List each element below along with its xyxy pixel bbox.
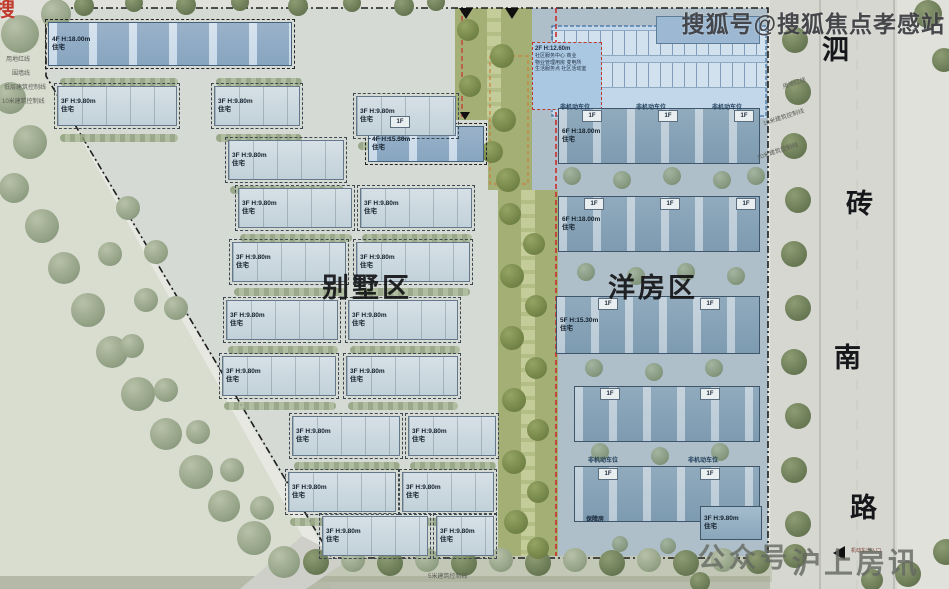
garage-1f-box: 1F	[600, 388, 620, 400]
building: 3F H:9.80m住宅	[402, 472, 494, 512]
building-label: 3F H:9.80m住宅	[352, 312, 387, 328]
building-label: 3F H:9.80m住宅	[364, 200, 399, 216]
watermark-sohu: 搜狐号@搜狐焦点孝感站	[682, 5, 945, 39]
building: 3F H:9.80m住宅	[238, 188, 352, 228]
garage-1f-box: 1F	[598, 468, 618, 480]
building-label: 4F H:15.30m住宅	[372, 136, 410, 152]
annotation-left: 低层建筑控制线	[4, 82, 46, 91]
zone-label-flats: 洋房区	[608, 266, 698, 305]
stall-label: 非机动车位	[636, 102, 666, 111]
building-label: 3F H:9.80m住宅	[704, 515, 739, 531]
building: 4F H:18.00m住宅	[48, 22, 292, 66]
building: 3F H:9.80m住宅	[360, 188, 472, 228]
building-label: 3F H:9.80m住宅	[412, 428, 447, 444]
building-label: 3F H:9.80m住宅	[236, 254, 271, 270]
building: 3F H:9.80m住宅	[292, 416, 400, 456]
road-name-char: 南	[834, 336, 861, 375]
building-label: 3F H:9.80m住宅	[61, 98, 96, 114]
entrance-marker-icon	[505, 8, 519, 19]
annotation-bottom: 5米建筑控制线	[428, 571, 467, 580]
buildings-layer: 4F H:18.00m住宅4F H:15.30m住宅3F H:9.80m住宅3F…	[0, 0, 949, 589]
building: 3F H:9.80m住宅	[408, 416, 496, 456]
garage-1f-box: 1F	[734, 110, 754, 122]
building-label: 3F H:9.80m住宅	[226, 368, 261, 384]
garage-1f-box: 1F	[658, 110, 678, 122]
building-label: 3F H:9.80m住宅	[326, 528, 361, 544]
garage-1f-box: 1F	[660, 198, 680, 210]
annotation-left: 用地红线	[6, 54, 30, 63]
building-label: 3F H:9.80m住宅	[296, 428, 331, 444]
building-label: 3F H:9.80m住宅	[232, 152, 267, 168]
garage-1f-box: 1F	[700, 388, 720, 400]
building: 3F H:9.80m住宅	[346, 356, 458, 396]
building-label: 3F H:9.80m住宅	[230, 312, 265, 328]
zone-label-villa: 别墅区	[322, 266, 412, 305]
entrance-marker-icon	[460, 112, 470, 120]
garage-1f-box: 1F	[700, 468, 720, 480]
building-label: 3F H:9.80m住宅	[218, 98, 253, 114]
watermark-hushangfangxun: 沪上房讯	[792, 540, 920, 582]
garage-1f-box: 1F	[736, 198, 756, 210]
building: 3F H:9.80m住宅	[700, 506, 762, 540]
annotation-affordable: 保障房	[586, 514, 604, 523]
building-label: 6F H:18.00m住宅	[562, 216, 600, 232]
stall-label: 非机动车位	[588, 455, 618, 464]
building-label: 5F H:15.30m住宅	[560, 317, 598, 333]
annotation-left: 10米建筑控制线	[2, 96, 45, 105]
building: 3F H:9.80m住宅	[57, 86, 177, 126]
building-label: 3F H:9.80m住宅	[350, 368, 385, 384]
building: 3F H:9.80m住宅	[288, 472, 396, 512]
building-label: 3F H:9.80m住宅	[440, 528, 475, 544]
stall-label: 非机动车位	[712, 102, 742, 111]
building: 3F H:9.80m住宅	[348, 300, 458, 340]
building: 3F H:9.80m住宅	[222, 356, 336, 396]
garage-1f-box: 1F	[700, 298, 720, 310]
site-plan: 2F H:12.60m 社区服务中心 商业 物业管理用房 变电所 生活服务点 社…	[0, 0, 949, 589]
building: 3F H:9.80m住宅	[228, 140, 344, 180]
road-name-char: 路	[850, 486, 877, 525]
watermark-gongzhonghao: 公众号	[698, 536, 791, 575]
stall-label: 非机动车位	[688, 455, 718, 464]
building: 3F H:9.80m住宅	[436, 516, 494, 556]
building: 3F H:9.80m住宅	[322, 516, 428, 556]
garage-1f-box: 1F	[582, 110, 602, 122]
building: 3F H:9.80m住宅	[226, 300, 338, 340]
road-name-char: 砖	[846, 182, 873, 221]
building-label: 4F H:18.00m住宅	[52, 36, 90, 52]
building-label: 3F H:9.80m住宅	[406, 484, 441, 500]
garage-1f-box: 1F	[390, 116, 410, 128]
building-label: 3F H:9.80m住宅	[242, 200, 277, 216]
building-label: 6F H:18.00m住宅	[562, 128, 600, 144]
building-label: 3F H:9.80m住宅	[292, 484, 327, 500]
building: 3F H:9.80m住宅	[214, 86, 300, 126]
annotation-left: 围墙线	[12, 68, 30, 77]
garage-1f-box: 1F	[584, 198, 604, 210]
entrance-marker-icon	[459, 8, 473, 19]
watermark-corner-partial: 搜	[0, 0, 15, 22]
stall-label: 非机动车位	[560, 102, 590, 111]
